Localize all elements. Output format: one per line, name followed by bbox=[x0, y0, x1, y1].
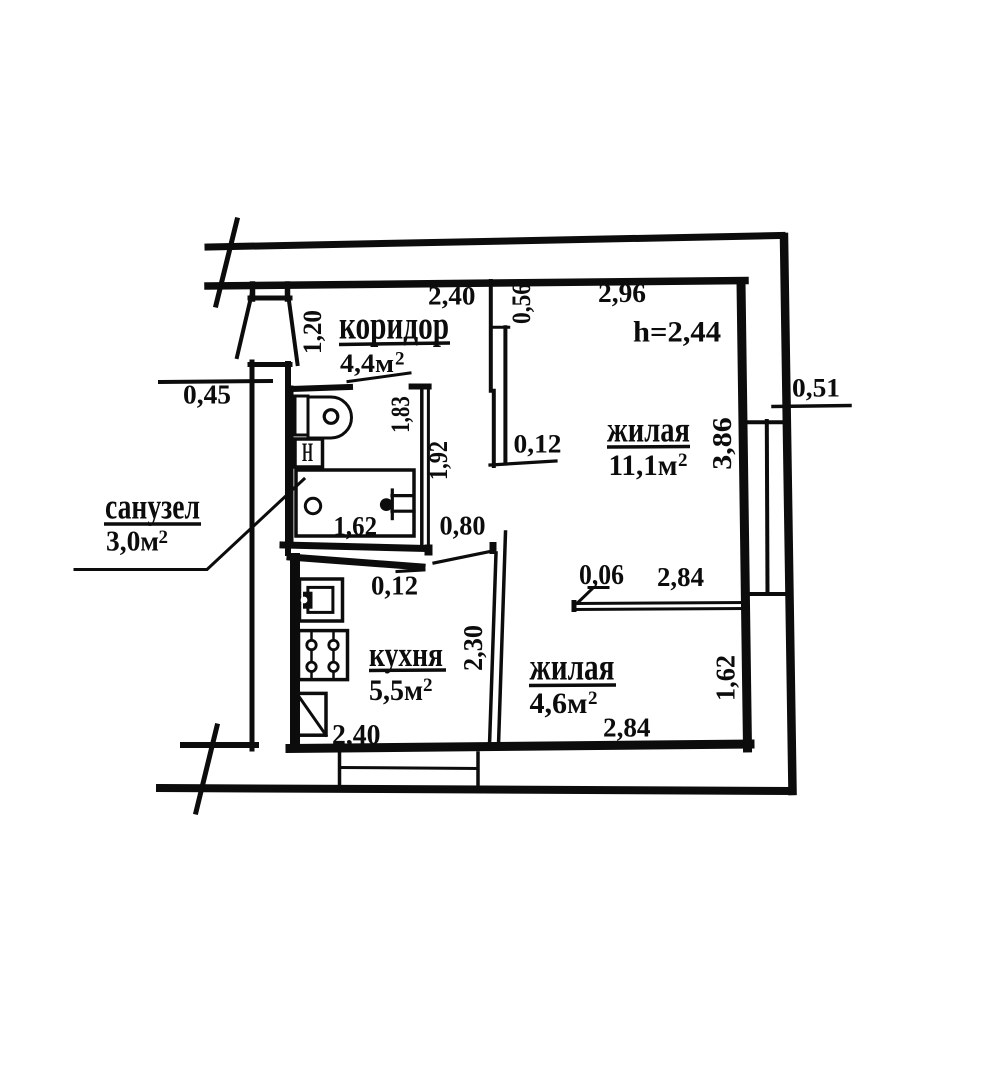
svg-text:2,84: 2,84 bbox=[603, 713, 651, 743]
svg-text:3,0м: 3,0м bbox=[106, 527, 159, 558]
svg-text:0,45: 0,45 bbox=[183, 380, 231, 410]
svg-text:4,4м: 4,4м bbox=[340, 349, 394, 378]
svg-text:2,96: 2,96 bbox=[598, 278, 646, 308]
svg-text:0,56: 0,56 bbox=[507, 283, 536, 324]
svg-text:2,84: 2,84 bbox=[657, 562, 704, 592]
svg-text:1,62: 1,62 bbox=[711, 655, 741, 701]
svg-text:11,1м: 11,1м bbox=[609, 449, 678, 482]
svg-text:Н: Н bbox=[302, 438, 313, 467]
svg-text:2,40: 2,40 bbox=[332, 719, 381, 751]
svg-text:кухня: кухня bbox=[369, 635, 443, 674]
svg-text:2,40: 2,40 bbox=[428, 282, 476, 311]
svg-text:1,92: 1,92 bbox=[424, 441, 453, 480]
svg-text:2: 2 bbox=[423, 675, 433, 696]
svg-text:жилая: жилая bbox=[530, 647, 615, 689]
svg-text:1,83: 1,83 bbox=[386, 396, 415, 433]
svg-text:5,5м: 5,5м bbox=[369, 674, 423, 707]
svg-text:0,51: 0,51 bbox=[792, 374, 840, 403]
svg-text:0,12: 0,12 bbox=[371, 571, 418, 601]
svg-text:2: 2 bbox=[159, 527, 169, 548]
svg-text:0,06: 0,06 bbox=[579, 560, 624, 591]
svg-text:санузел: санузел bbox=[105, 487, 200, 527]
svg-text:2: 2 bbox=[395, 349, 405, 370]
svg-text:2: 2 bbox=[588, 688, 598, 709]
svg-text:0,80: 0,80 bbox=[440, 511, 486, 541]
svg-text:h=2,44: h=2,44 bbox=[633, 316, 721, 349]
svg-text:2: 2 bbox=[678, 450, 688, 471]
svg-text:1,20: 1,20 bbox=[298, 310, 327, 354]
svg-text:0,12: 0,12 bbox=[514, 430, 562, 459]
svg-text:3,86: 3,86 bbox=[707, 417, 737, 470]
svg-text:жилая: жилая bbox=[607, 410, 690, 450]
svg-text:2,30: 2,30 bbox=[458, 625, 488, 671]
svg-text:1,62: 1,62 bbox=[334, 511, 378, 541]
svg-text:4,6м: 4,6м bbox=[530, 687, 588, 720]
